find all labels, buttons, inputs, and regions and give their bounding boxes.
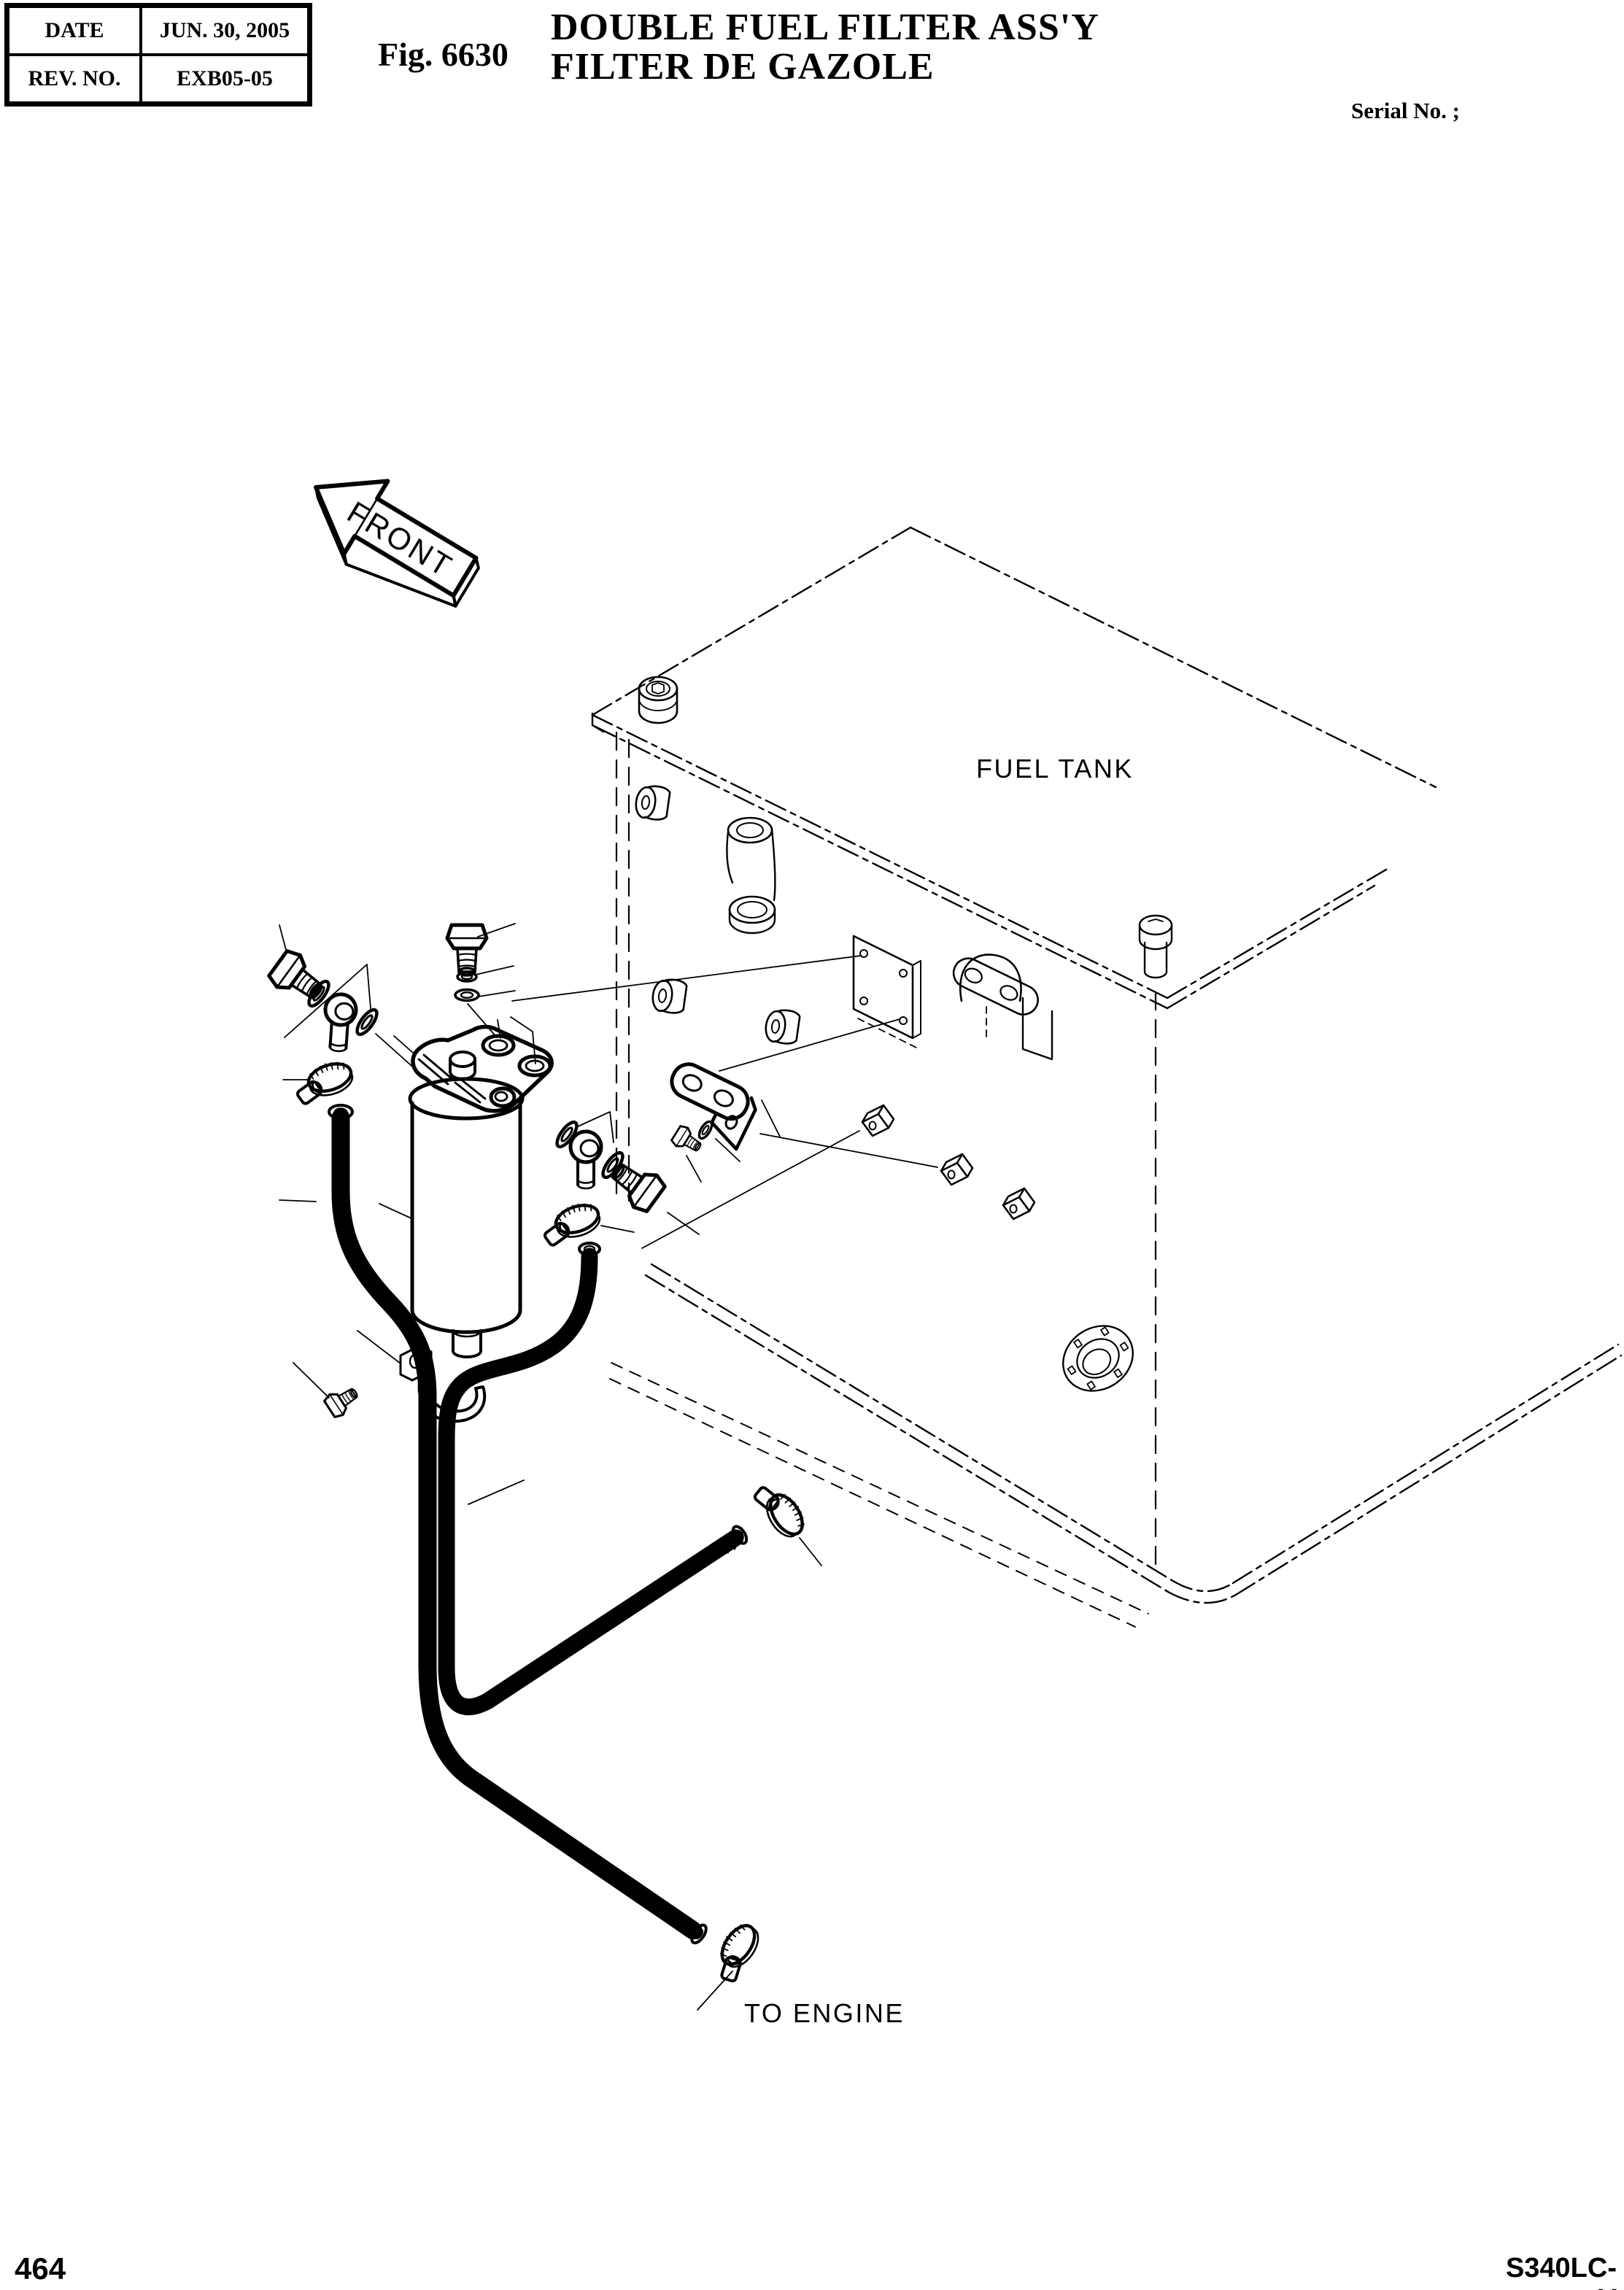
exploded-parts-drawing: FRONT FUEL TANK TO ENGINE [0,0,1624,2290]
tank-drain-flange [1051,1313,1145,1404]
sealing-washer [455,990,479,1001]
filter-head [413,1027,552,1111]
inlet-fitting-cluster [266,948,380,1107]
front-arrow: FRONT [290,451,492,624]
tank-filler-cap [1140,916,1172,978]
tank-elbow-fitting [727,818,775,933]
hose-clamp [290,1057,356,1106]
tank-boss [634,784,670,821]
fuel-tank-label: FUEL TANK [976,754,1134,784]
banjo-fitting [322,994,357,1053]
fuel-tank-outline [592,527,1621,1627]
tank-weld-nut [941,1154,973,1185]
hose-clamp [751,1476,810,1543]
hex-bolt [447,925,487,975]
filter-bracket [656,1059,761,1157]
plain-washer [457,972,476,981]
outlet-fitting-cluster [538,1119,668,1247]
clamp-screw [323,1382,363,1419]
hose-clamp [705,1919,766,1985]
leader-lines [279,924,937,2010]
tank-boss [764,1007,800,1045]
filter-canister [410,1079,522,1357]
catalog-page: DATE JUN. 30, 2005 REV. NO. EXB05-05 Fig… [0,0,1624,2290]
tank-weld-nut [862,1105,894,1136]
hose-return [446,1256,735,1707]
fuel-filter-assembly [410,1027,552,1358]
fuel-hoses [329,1105,749,1946]
tank-weld-nut [1003,1188,1035,1219]
hose-route-phantom [610,1363,1148,1627]
hose-clamp [538,1199,603,1247]
tank-mounting-plate [854,936,921,1048]
hose-to-engine [341,1118,693,1930]
banjo-bolt [603,1153,668,1215]
tank-bracket [948,953,1052,1059]
to-engine-label: TO ENGINE [744,1998,905,2028]
spring-washer [697,1120,714,1140]
banjo-fitting [571,1132,601,1188]
